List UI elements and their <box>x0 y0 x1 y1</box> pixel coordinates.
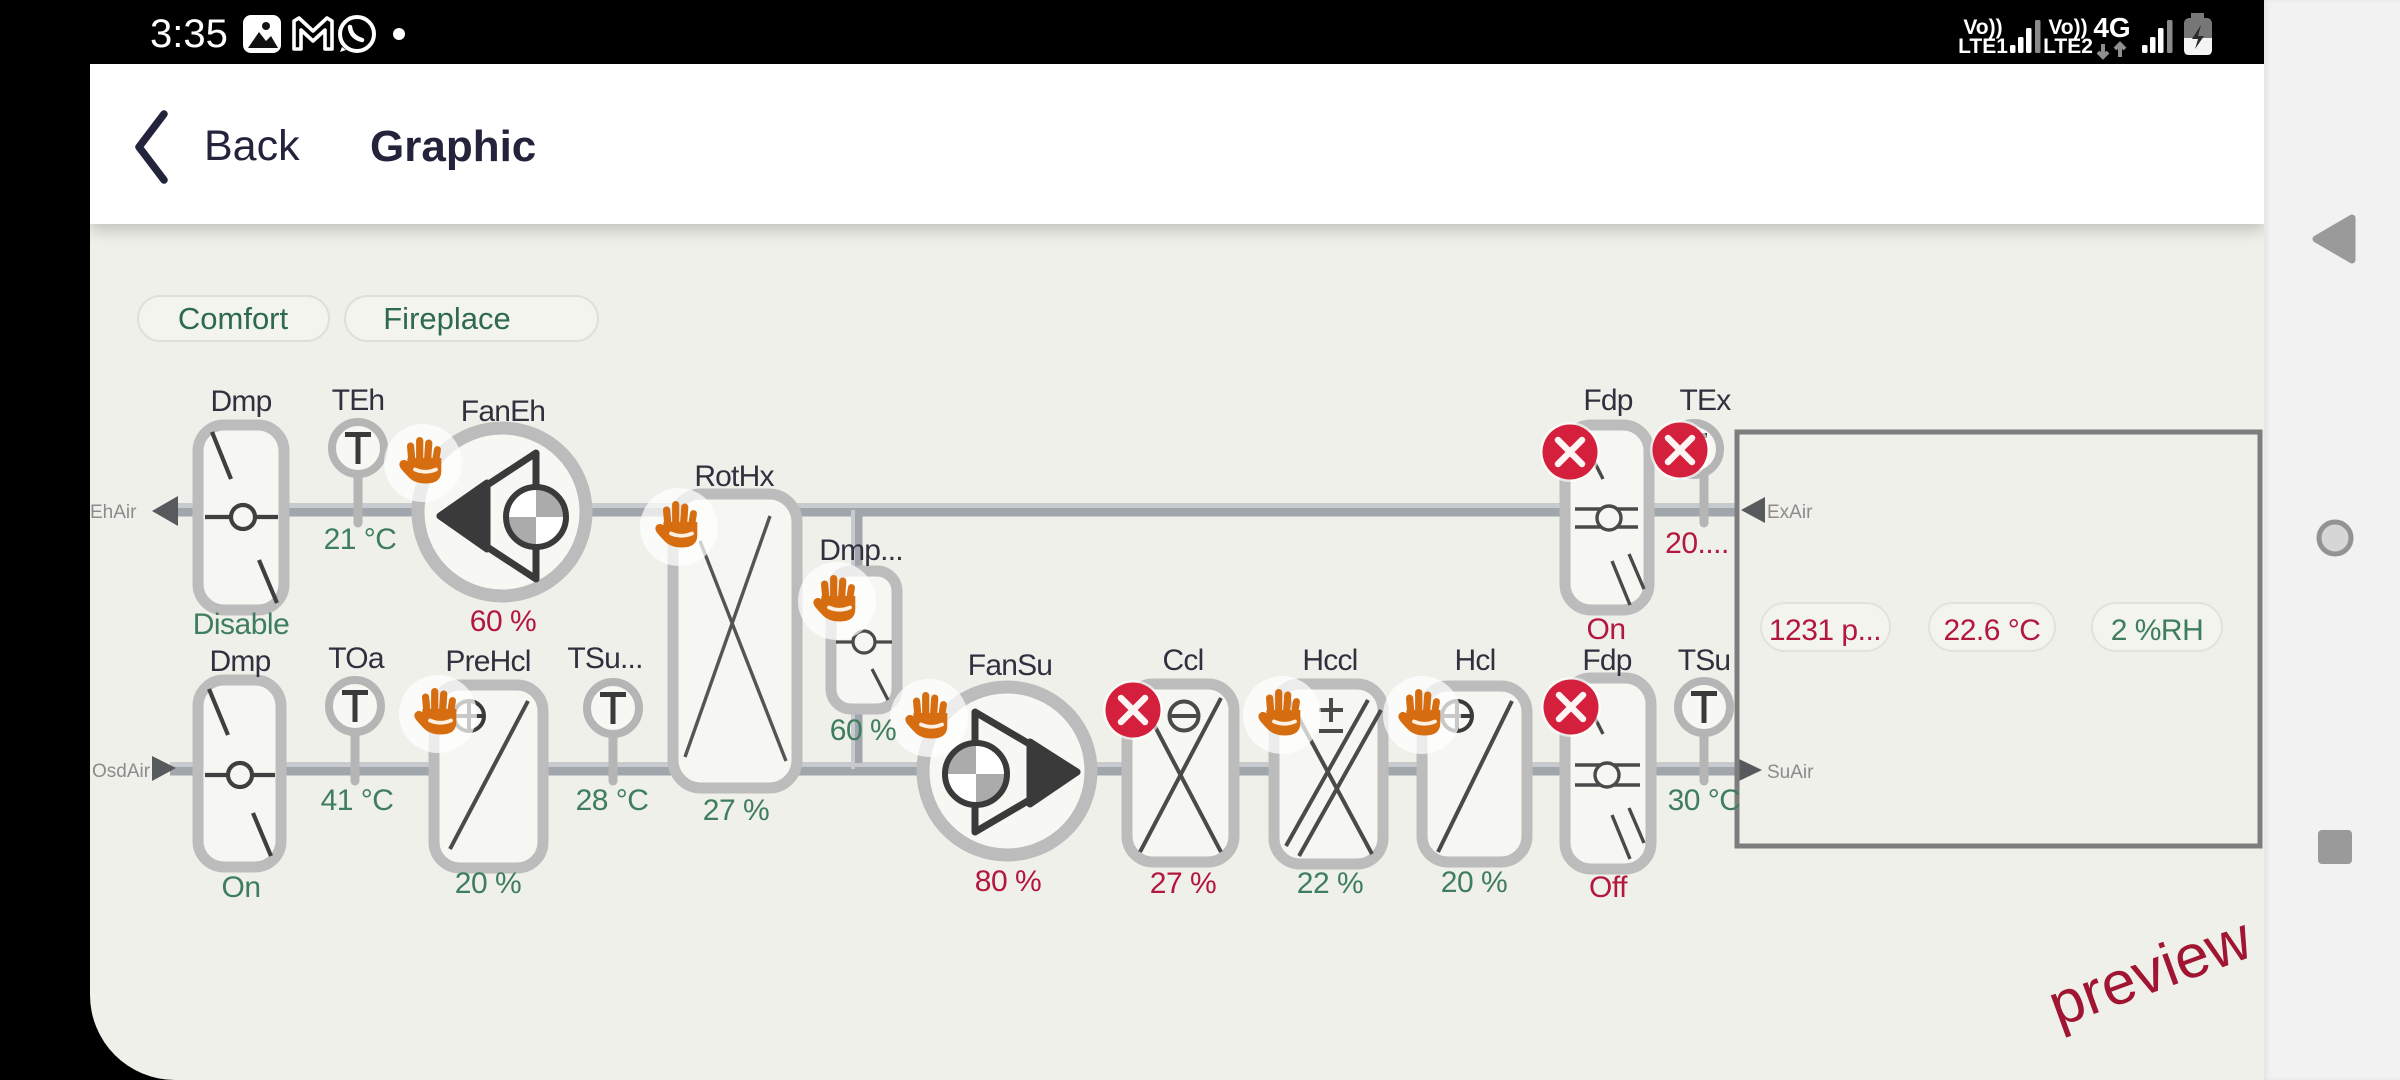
svg-text:Dmp: Dmp <box>211 385 272 418</box>
svg-text:Ccl: Ccl <box>1163 644 1204 677</box>
svg-text:27 %: 27 % <box>703 794 769 827</box>
svg-text:TSu: TSu <box>1678 644 1731 677</box>
svg-text:TEh: TEh <box>332 384 385 417</box>
svg-text:RotHx: RotHx <box>694 460 774 493</box>
svg-text:27 %: 27 % <box>1150 867 1216 900</box>
svg-text:22 %: 22 % <box>1297 867 1363 900</box>
svg-text:20 %: 20 % <box>1441 866 1507 899</box>
svg-text:LTE1: LTE1 <box>1958 35 2008 58</box>
svg-text:80 %: 80 % <box>975 865 1041 898</box>
svg-text:Off: Off <box>1589 871 1628 904</box>
svg-text:Fireplace: Fireplace <box>383 301 511 336</box>
svg-text:60 %: 60 % <box>830 714 896 747</box>
svg-text:On: On <box>1586 613 1625 646</box>
svg-text:FanSu: FanSu <box>968 649 1052 682</box>
svg-text:20 %: 20 % <box>455 867 521 900</box>
svg-text:TSu...: TSu... <box>567 642 642 675</box>
svg-text:Hcl: Hcl <box>1455 644 1496 677</box>
svg-text:EhAir: EhAir <box>90 502 137 523</box>
svg-text:Fdp: Fdp <box>1583 384 1632 417</box>
svg-text:On: On <box>221 871 260 904</box>
svg-text:FanEh: FanEh <box>461 395 545 428</box>
svg-text:60 %: 60 % <box>470 605 536 638</box>
svg-text:4G: 4G <box>2093 12 2130 43</box>
svg-text:30 °C: 30 °C <box>1668 784 1741 817</box>
svg-text:Graphic: Graphic <box>370 122 536 171</box>
svg-text:20....: 20.... <box>1665 527 1729 560</box>
svg-text:LTE2: LTE2 <box>2043 35 2093 58</box>
svg-text:PreHcl: PreHcl <box>445 645 530 678</box>
svg-text:22.6 °C: 22.6 °C <box>1944 614 2041 647</box>
svg-text:ExAir: ExAir <box>1767 502 1813 523</box>
svg-text:Dmp: Dmp <box>210 645 271 678</box>
svg-text:Disable: Disable <box>193 608 290 641</box>
svg-text:Comfort: Comfort <box>178 301 289 336</box>
svg-text:preview: preview <box>2039 903 2261 1039</box>
svg-text:2 %RH: 2 %RH <box>2111 614 2204 647</box>
svg-text:Back: Back <box>204 122 300 170</box>
svg-text:SuAir: SuAir <box>1767 762 1814 783</box>
svg-text:3:35: 3:35 <box>150 12 228 56</box>
svg-text:Dmp...: Dmp... <box>819 534 903 567</box>
svg-text:Hccl: Hccl <box>1302 644 1357 677</box>
svg-text:21 °C: 21 °C <box>324 523 397 556</box>
svg-text:TOa: TOa <box>328 642 385 675</box>
svg-text:41 °C: 41 °C <box>321 784 394 817</box>
svg-text:28 °C: 28 °C <box>576 784 649 817</box>
svg-text:OsdAir: OsdAir <box>92 761 151 782</box>
svg-text:Fdp: Fdp <box>1582 644 1631 677</box>
svg-text:TEx: TEx <box>1680 384 1732 417</box>
svg-text:1231 p...: 1231 p... <box>1769 614 1881 647</box>
